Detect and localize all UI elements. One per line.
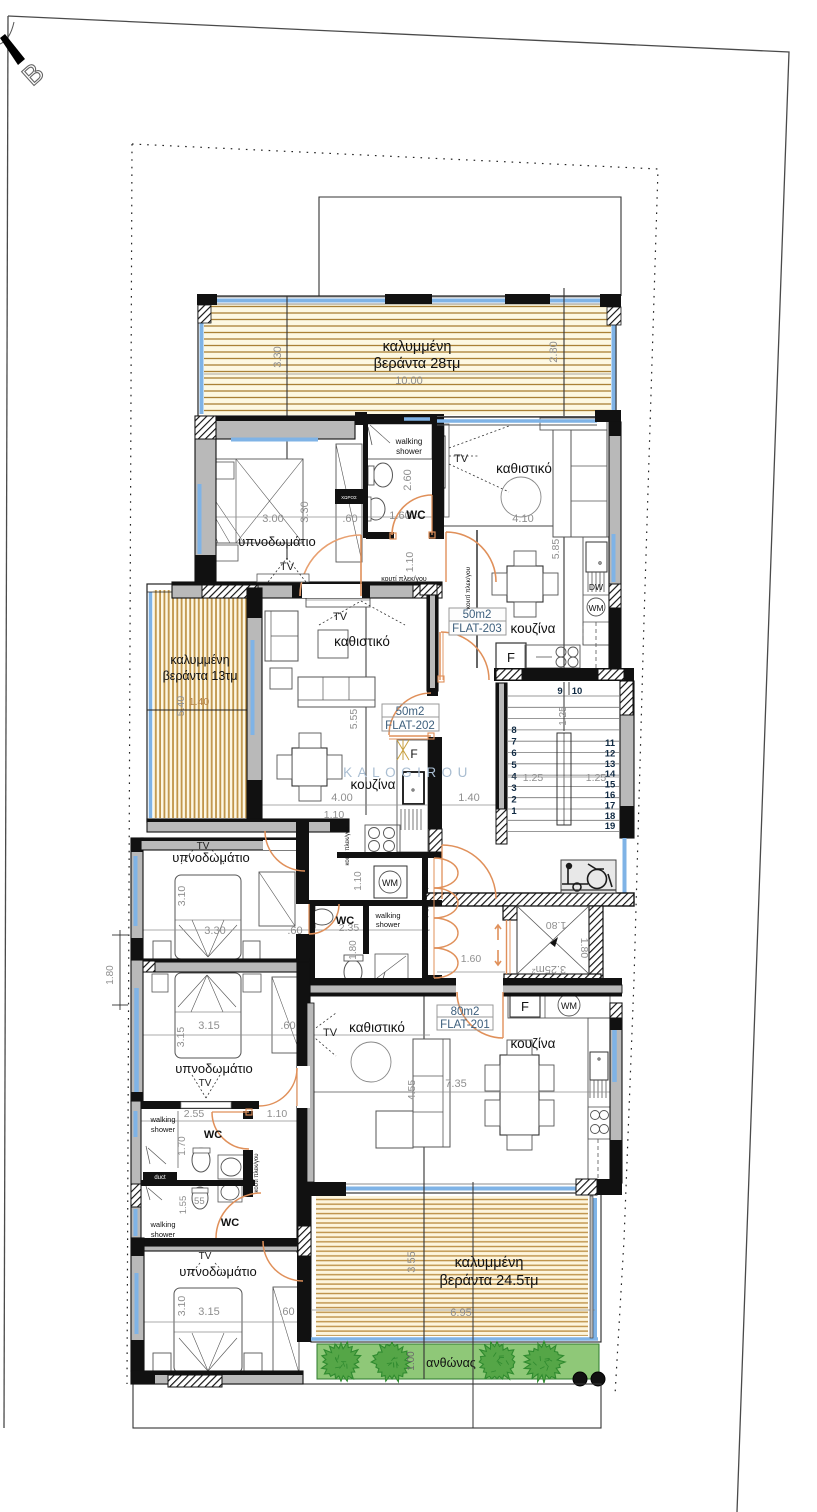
svg-text:υπνοδωμάτιο: υπνοδωμάτιο	[172, 850, 249, 865]
svg-text:.60: .60	[280, 1020, 295, 1032]
svg-text:80m2: 80m2	[451, 1006, 480, 1018]
svg-text:1.10: 1.10	[324, 809, 345, 821]
svg-text:3.55: 3.55	[406, 1251, 418, 1272]
svg-text:καλυμμένη: καλυμμένη	[455, 1255, 524, 1271]
svg-text:2.60: 2.60	[402, 469, 414, 490]
svg-text:7: 7	[511, 737, 516, 748]
svg-text:4.55: 4.55	[406, 1080, 418, 1101]
svg-text:10.00: 10.00	[395, 375, 423, 387]
svg-text:16: 16	[605, 790, 616, 801]
svg-text:TV: TV	[333, 611, 348, 623]
svg-text:15: 15	[605, 780, 616, 791]
svg-text:υπνοδωμάτιο: υπνοδωμάτιο	[238, 534, 315, 549]
svg-text:1.80: 1.80	[348, 940, 359, 960]
svg-text:FLAT-203: FLAT-203	[452, 623, 502, 635]
svg-text:6.95: 6.95	[450, 1307, 471, 1319]
svg-text:καθιστικό: καθιστικό	[334, 634, 390, 649]
svg-text:WC: WC	[336, 915, 354, 927]
svg-text:καλυμμένη: καλυμμένη	[383, 339, 452, 355]
svg-text:1.70: 1.70	[177, 1136, 188, 1156]
svg-text:υπνοδωμάτιο: υπνοδωμάτιο	[179, 1264, 256, 1279]
svg-text:FLAT-201: FLAT-201	[440, 1019, 490, 1031]
svg-text:.60: .60	[342, 513, 357, 525]
svg-text:1.10: 1.10	[353, 871, 364, 891]
svg-text:F: F	[507, 650, 515, 665]
svg-text:50m2: 50m2	[396, 706, 425, 718]
svg-text:κουζίνα: κουζίνα	[511, 1036, 556, 1051]
svg-text:1: 1	[511, 806, 517, 817]
svg-text:13: 13	[605, 759, 616, 770]
svg-text:.60: .60	[279, 1306, 294, 1318]
svg-text:καλυμμένη: καλυμμένη	[170, 653, 229, 667]
svg-text:17: 17	[605, 800, 616, 811]
svg-text:FLAT-202: FLAT-202	[385, 720, 435, 732]
svg-text:1.60: 1.60	[461, 953, 482, 965]
svg-text:1.40: 1.40	[189, 696, 210, 708]
svg-text:υπνοδωμάτιο: υπνοδωμάτιο	[175, 1061, 252, 1076]
svg-text:11: 11	[605, 738, 616, 749]
svg-text:DW: DW	[589, 582, 603, 592]
svg-text:dust πλεκ/γου+μηχανολογικού: dust πλεκ/γου+μηχανολογικού	[421, 874, 429, 961]
svg-text:2.55: 2.55	[184, 1108, 205, 1120]
svg-text:καθιστικό: καθιστικό	[349, 1020, 405, 1035]
svg-text:TV: TV	[199, 1078, 212, 1089]
svg-text:walking: walking	[374, 911, 400, 920]
svg-text:1.40: 1.40	[458, 792, 479, 804]
svg-text:3: 3	[511, 783, 516, 794]
svg-text:κουτί πλεκ/γου: κουτί πλεκ/γου	[254, 1153, 260, 1192]
svg-text:καθιστικό: καθιστικό	[496, 461, 552, 476]
svg-text:3.30: 3.30	[299, 501, 311, 522]
svg-text:TV: TV	[280, 561, 295, 573]
svg-text:walking: walking	[149, 1115, 175, 1124]
svg-text:1.25: 1.25	[586, 772, 607, 784]
svg-text:βεράντα 28τμ: βεράντα 28τμ	[374, 356, 461, 372]
svg-text:9: 9	[557, 686, 562, 697]
svg-text:5.85: 5.85	[550, 539, 562, 560]
svg-text:ΧΩΡΟΣ: ΧΩΡΟΣ	[341, 495, 357, 500]
svg-text:TV: TV	[323, 1027, 338, 1039]
svg-text:3.25m²: 3.25m²	[532, 963, 567, 975]
svg-text:TV: TV	[454, 453, 469, 465]
svg-text:WM: WM	[561, 1001, 577, 1011]
svg-text:WC: WC	[406, 510, 425, 522]
svg-text:6: 6	[511, 748, 516, 759]
svg-text:14: 14	[605, 769, 616, 780]
svg-text:50m2: 50m2	[463, 609, 492, 621]
svg-text:walking: walking	[395, 437, 423, 446]
svg-text:4.00: 4.00	[331, 792, 352, 804]
svg-text:shower: shower	[396, 447, 422, 456]
svg-text:5.40: 5.40	[175, 696, 187, 717]
svg-text:18: 18	[605, 811, 616, 822]
svg-text:κουτί πλεκ/γου: κουτί πλεκ/γου	[345, 826, 351, 865]
svg-text:3.30: 3.30	[272, 346, 284, 367]
svg-text:βεράντα 13τμ: βεράντα 13τμ	[163, 669, 238, 683]
svg-text:4.10: 4.10	[512, 513, 533, 525]
svg-text:8: 8	[511, 725, 516, 736]
svg-text:κουζίνα: κουζίνα	[511, 621, 556, 636]
svg-text:1.25: 1.25	[558, 706, 569, 726]
svg-text:7.35: 7.35	[445, 1078, 466, 1090]
svg-text:ανθώνας: ανθώνας	[426, 1356, 476, 1370]
svg-text:3.30: 3.30	[204, 925, 225, 937]
svg-text:κουζίνα: κουζίνα	[351, 777, 396, 792]
svg-text:2: 2	[511, 795, 516, 806]
svg-text:walking: walking	[149, 1220, 175, 1229]
svg-text:shower: shower	[376, 920, 401, 929]
svg-text:WC: WC	[221, 1217, 239, 1229]
svg-text:3.15: 3.15	[198, 1306, 219, 1318]
svg-text:1.25: 1.25	[523, 772, 544, 784]
svg-text:κουτί πλεκ/γου: κουτί πλεκ/γου	[381, 575, 427, 583]
svg-text:10: 10	[572, 686, 583, 697]
svg-text:WC: WC	[204, 1129, 222, 1141]
svg-text:1.10: 1.10	[267, 1108, 288, 1120]
svg-text:.55: .55	[191, 1196, 204, 1207]
svg-text:3.15: 3.15	[198, 1020, 219, 1032]
svg-text:.60: .60	[287, 925, 302, 937]
svg-text:5.55: 5.55	[348, 709, 360, 730]
svg-text:1.10: 1.10	[404, 552, 416, 573]
svg-text:1.55: 1.55	[178, 1196, 189, 1215]
svg-text:F: F	[521, 999, 529, 1014]
svg-text:19: 19	[605, 821, 616, 832]
svg-text:3.00: 3.00	[262, 513, 283, 525]
svg-text:TV: TV	[199, 1251, 212, 1262]
svg-text:βεράντα 24.5τμ: βεράντα 24.5τμ	[440, 1273, 539, 1289]
svg-text:shower: shower	[151, 1125, 176, 1134]
svg-text:1.80: 1.80	[546, 919, 567, 931]
svg-text:5: 5	[511, 760, 517, 771]
svg-text:WM: WM	[382, 878, 398, 888]
svg-text:WM: WM	[588, 603, 603, 613]
svg-text:κουτί πλεκ/γου: κουτί πλεκ/γου	[464, 566, 472, 609]
svg-text:shower: shower	[151, 1230, 176, 1239]
svg-text:12: 12	[605, 748, 616, 759]
svg-text:TV: TV	[197, 841, 210, 852]
svg-text:F: F	[410, 747, 417, 761]
svg-text:1.80: 1.80	[578, 938, 590, 959]
svg-text:2.80: 2.80	[548, 341, 560, 362]
svg-text:1.00: 1.00	[406, 1351, 417, 1371]
svg-text:3.10: 3.10	[176, 886, 188, 907]
svg-text:3.15: 3.15	[175, 1027, 187, 1048]
svg-text:3.10: 3.10	[176, 1296, 188, 1317]
svg-text:1.80: 1.80	[105, 965, 116, 985]
